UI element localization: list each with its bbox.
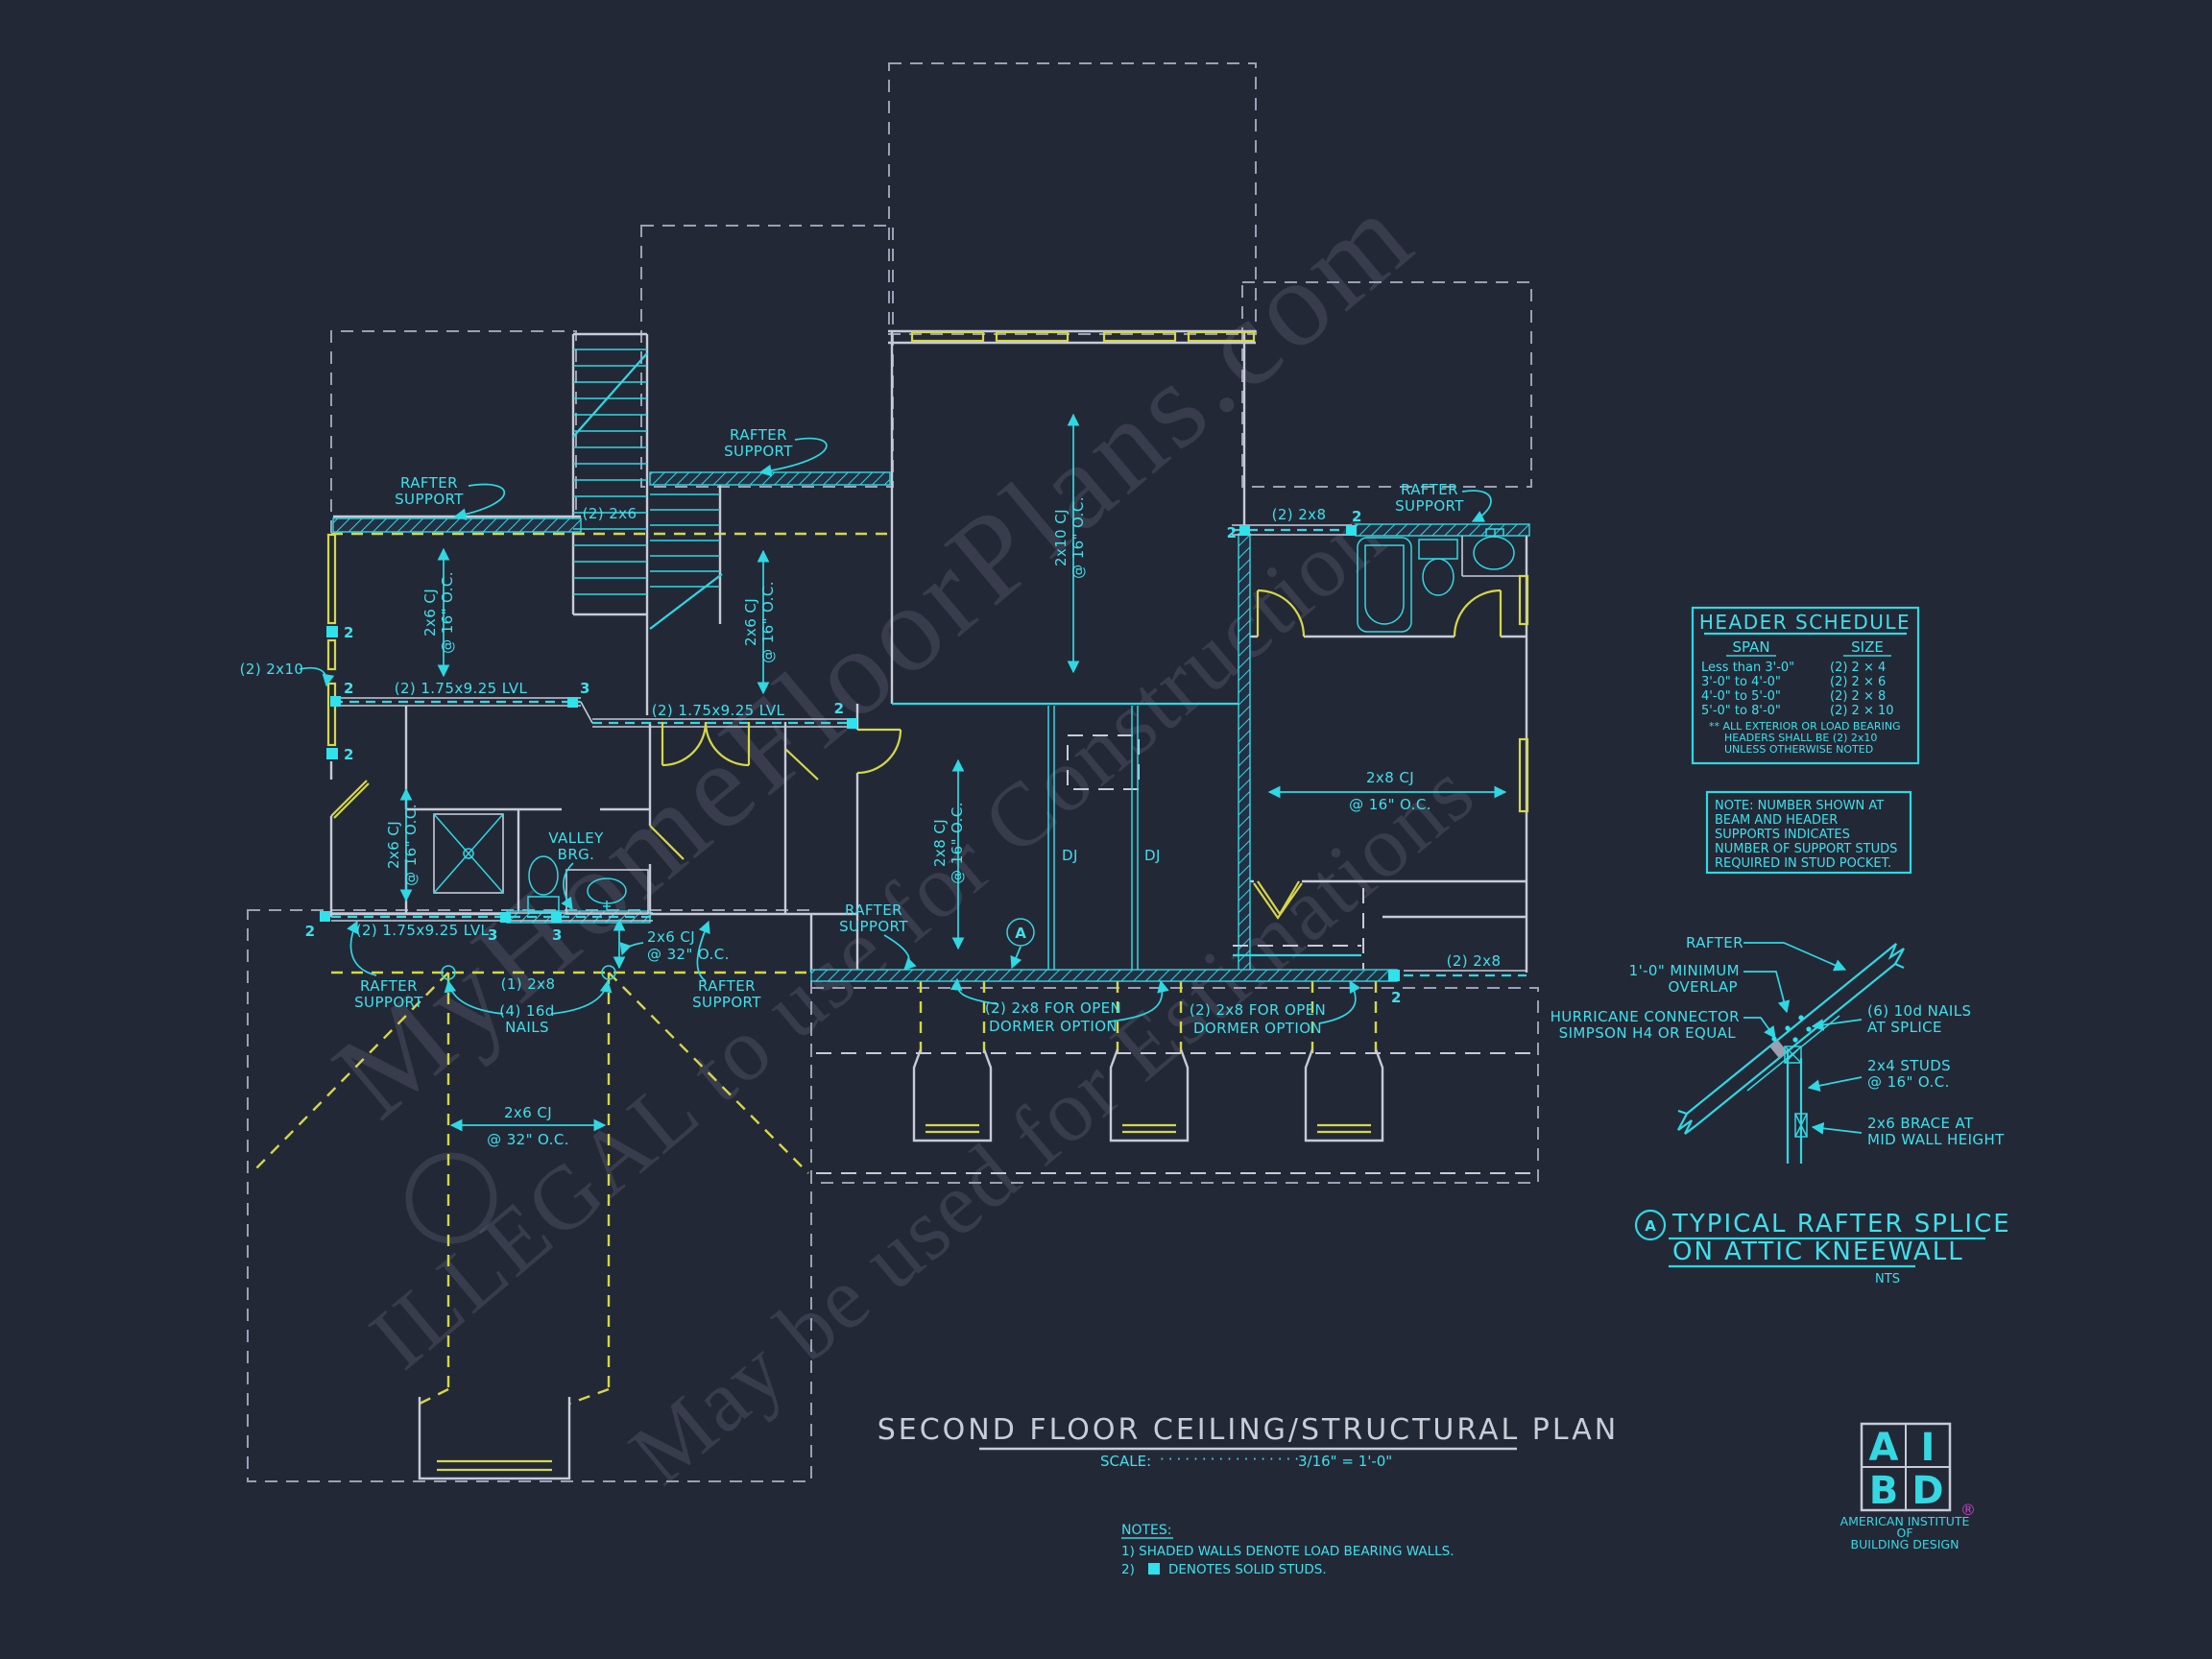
joist-dim: 2x10 CJ [1052,509,1070,566]
detail-overlap-label: 1'-0" MINIMUM [1629,962,1740,979]
dormer-option-label: (2) 2x8 FOR OPEN [985,999,1121,1017]
dj-label: DJ [1062,847,1078,864]
joist-dim: 2x6 CJ [647,928,695,946]
joist-dim: @ 16" O.C. [759,581,777,663]
header-label: (2) 2x8 [1272,506,1327,523]
sink-bowl [1474,537,1514,569]
detail-overlap-label: OVERLAP [1668,978,1738,996]
joist-dim: 2x6 CJ [742,598,759,646]
joist-dim: 2x8 CJ [931,819,949,867]
schedule-span: 3'-0" to 4'-0" [1701,675,1781,689]
rafter-support-label: RAFTER [698,977,756,995]
rafter-support-label: SUPPORT [354,994,423,1011]
detail-hurricane-label: SIMPSON H4 OR EQUAL [1559,1024,1737,1042]
lvl-beam-label: (2) 1.75x9.25 LVL [395,680,528,697]
note-line: SUPPORTS INDICATES [1715,828,1850,842]
rafter-support-label: RAFTER [1401,481,1458,498]
toilet-bowl [1423,559,1454,595]
detail-brace-label: 2x6 BRACE AT [1867,1115,1974,1132]
detail-studs-label: @ 16" O.C. [1867,1073,1950,1091]
logo-letter-a: A [1869,1426,1899,1470]
dormer-option-label: DORMER OPTION [1193,1020,1322,1037]
schedule-col-size: SIZE [1851,638,1884,656]
joist-dim: 2x8 CJ [1366,769,1414,786]
joist-dim: @ 16" O.C. [439,571,456,654]
notes-block: NOTES: 1) SHADED WALLS DENOTE LOAD BEARI… [1121,1523,1455,1577]
joist-dim: @ 32" O.C. [487,1131,569,1148]
rafter-support-label: RAFTER [845,902,902,919]
rafter-support-label: SUPPORT [1395,497,1464,515]
joist-dim: @ 16" O.C. [949,802,966,884]
rafter-support-label: SUPPORT [724,443,793,460]
stud-count: 3 [552,926,562,944]
schedule-span: 5'-0" to 8'-0" [1701,704,1781,718]
stud-count: 3 [488,926,497,944]
joist-dim: 2x6 CJ [385,821,402,869]
detail-title: TYPICAL RAFTER SPLICE [1671,1210,2011,1238]
detail-hurricane-label: HURRICANE CONNECTOR [1551,1008,1740,1025]
rafter-support-label: RAFTER [360,977,418,995]
rafter-splice-detail: RAFTER 1'-0" MINIMUM OVERLAP HURRICANE C… [1551,934,2011,1286]
detail-rafter-label: RAFTER [1686,934,1743,951]
header-label: (2) 2x8 [1447,952,1502,970]
dormer-option-label: (2) 2x8 FOR OPEN [1190,1001,1326,1019]
stud-count: 2 [344,680,353,697]
nails-label: NAILS [505,1019,549,1036]
stud-count: 2 [344,624,353,641]
schedule-span: Less than 3'-0" [1701,661,1794,675]
toilet-tank [1419,540,1457,559]
stud-count: 2 [1227,524,1237,541]
page-title: SECOND FLOOR CEILING/STRUCTURAL PLAN [878,1413,1620,1447]
nails-label: (4) 16d [499,1002,554,1020]
note-box: NOTE: NUMBER SHOWN AT BEAM AND HEADER SU… [1707,792,1911,873]
notes-line2: DENOTES SOLID STUDS. [1168,1562,1327,1577]
valley-brg-label: VALLEY [548,829,604,847]
joist-dim: 2x6 CJ [504,1104,552,1121]
detail-nails-label: (6) 10d NAILS [1867,1002,1971,1020]
lvl-beam-label: (2) 1.75x9.25 LVL [652,702,785,719]
note-line: NOTE: NUMBER SHOWN AT [1715,799,1884,813]
blueprint-page: MyHomeFloorPlans.com ILLEGAL to use for … [0,0,2212,1659]
logo-caption: BUILDING DESIGN [1851,1537,1960,1551]
note-line: BEAM AND HEADER [1715,813,1838,828]
joist-dim: @ 32" O.C. [647,946,730,963]
logo-letter-i: I [1921,1426,1935,1470]
schedule-size: (2) 2 × 6 [1830,675,1886,689]
detail-title: ON ATTIC KNEEWALL [1672,1238,1964,1266]
schedule-col-span: SPAN [1732,638,1769,656]
schedule-footnote: UNLESS OTHERWISE NOTED [1724,743,1873,756]
aibd-logo: A I B D ® AMERICAN INSTITUTE OF BUILDING… [1840,1424,1976,1551]
detail-studs-label: 2x4 STUDS [1867,1057,1951,1074]
joist-dim: 2x6 CJ [421,589,439,637]
detail-marker: A [1015,925,1026,942]
scale-value: 3/16" = 1'-0" [1298,1453,1392,1470]
notes-line2-prefix: 2) [1121,1562,1135,1577]
stud-count: 2 [1391,989,1401,1006]
beam-label: (2) 2x10 [240,661,304,678]
stud-count: 2 [344,746,353,763]
schedule-size: (2) 2 × 10 [1830,704,1894,718]
rafter-support-label: SUPPORT [692,994,761,1011]
stud-count: 2 [834,700,844,717]
logo-letter-b: B [1869,1469,1899,1513]
rafter-support-label: SUPPORT [395,491,464,508]
joist-dim: @ 16" O.C. [1070,496,1087,579]
lvl-beam-label: (2) 1.75x9.25 LVL [356,922,490,939]
valley-brg-label: BRG. [558,846,595,863]
header-schedule: HEADER SCHEDULE SPAN SIZE Less than 3'-0… [1693,608,1918,763]
detail-brace-label: MID WALL HEIGHT [1867,1131,2005,1148]
dormer-option-label: DORMER OPTION [989,1018,1118,1035]
logo-letter-d: D [1911,1469,1943,1513]
schedule-span: 4'-0" to 5'-0" [1701,689,1781,704]
detail-nails-label: AT SPLICE [1867,1019,1942,1036]
schedule-title: HEADER SCHEDULE [1699,611,1911,634]
note-line: REQUIRED IN STUD POCKET. [1715,856,1891,871]
detail-ref: A [1645,1217,1656,1235]
joist-dim: @ 16" O.C. [1349,796,1431,813]
title-block: SECOND FLOOR CEILING/STRUCTURAL PLAN SCA… [878,1413,1620,1470]
scale-dots: ·················· [1160,1451,1311,1468]
rafter-support-label: SUPPORT [839,918,908,935]
stud-count: 2 [1352,508,1361,525]
schedule-size: (2) 2 × 4 [1830,661,1886,675]
notes-heading: NOTES: [1121,1523,1172,1538]
scale-label: SCALE: [1100,1453,1151,1470]
stud-count: 2 [305,923,315,940]
notes-line1: 1) SHADED WALLS DENOTE LOAD BEARING WALL… [1121,1544,1455,1559]
header-label: (2) 2x6 [583,505,637,522]
note-line: NUMBER OF SUPPORT STUDS [1715,842,1897,856]
detail-scale: NTS [1875,1272,1900,1286]
rafter-support-label: RAFTER [400,474,458,492]
dj-label: DJ [1144,847,1161,864]
ridge-label: (1) 2x8 [501,975,556,993]
rafter-support-label: RAFTER [730,426,787,444]
joist-dim: @ 16" O.C. [402,804,420,886]
stud-count: 3 [580,680,589,697]
schedule-size: (2) 2 × 8 [1830,689,1886,704]
solid-stud-legend-swatch [1148,1563,1160,1575]
watermark-estimations: May be used for Estimations [612,742,1492,1503]
blueprint-canvas: MyHomeFloorPlans.com ILLEGAL to use for … [0,0,2212,1659]
